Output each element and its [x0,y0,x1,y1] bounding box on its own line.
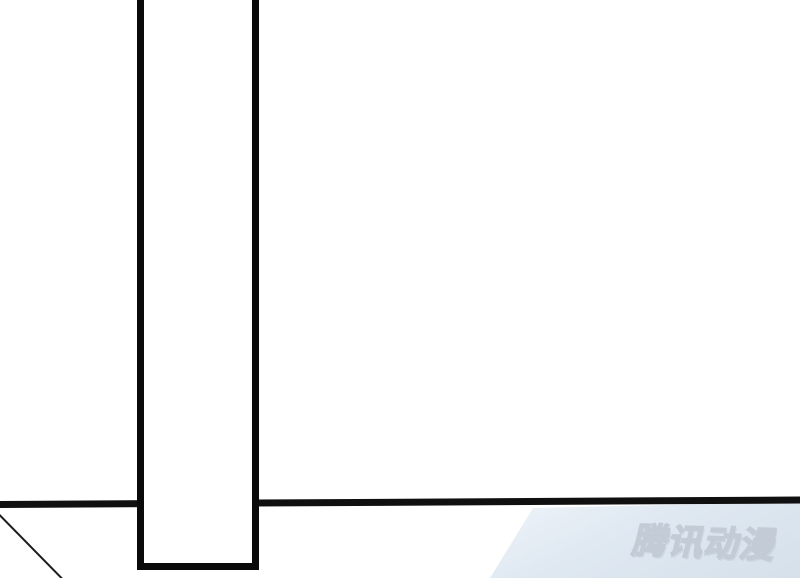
vertical-panel-gutter [137,0,259,570]
tencent-comics-watermark: 腾讯动漫 [628,513,783,569]
diagonal-sketch-line [0,512,65,578]
corner-shade-region: 腾讯动漫 [485,502,800,578]
comic-page: 腾讯动漫 [0,0,800,578]
